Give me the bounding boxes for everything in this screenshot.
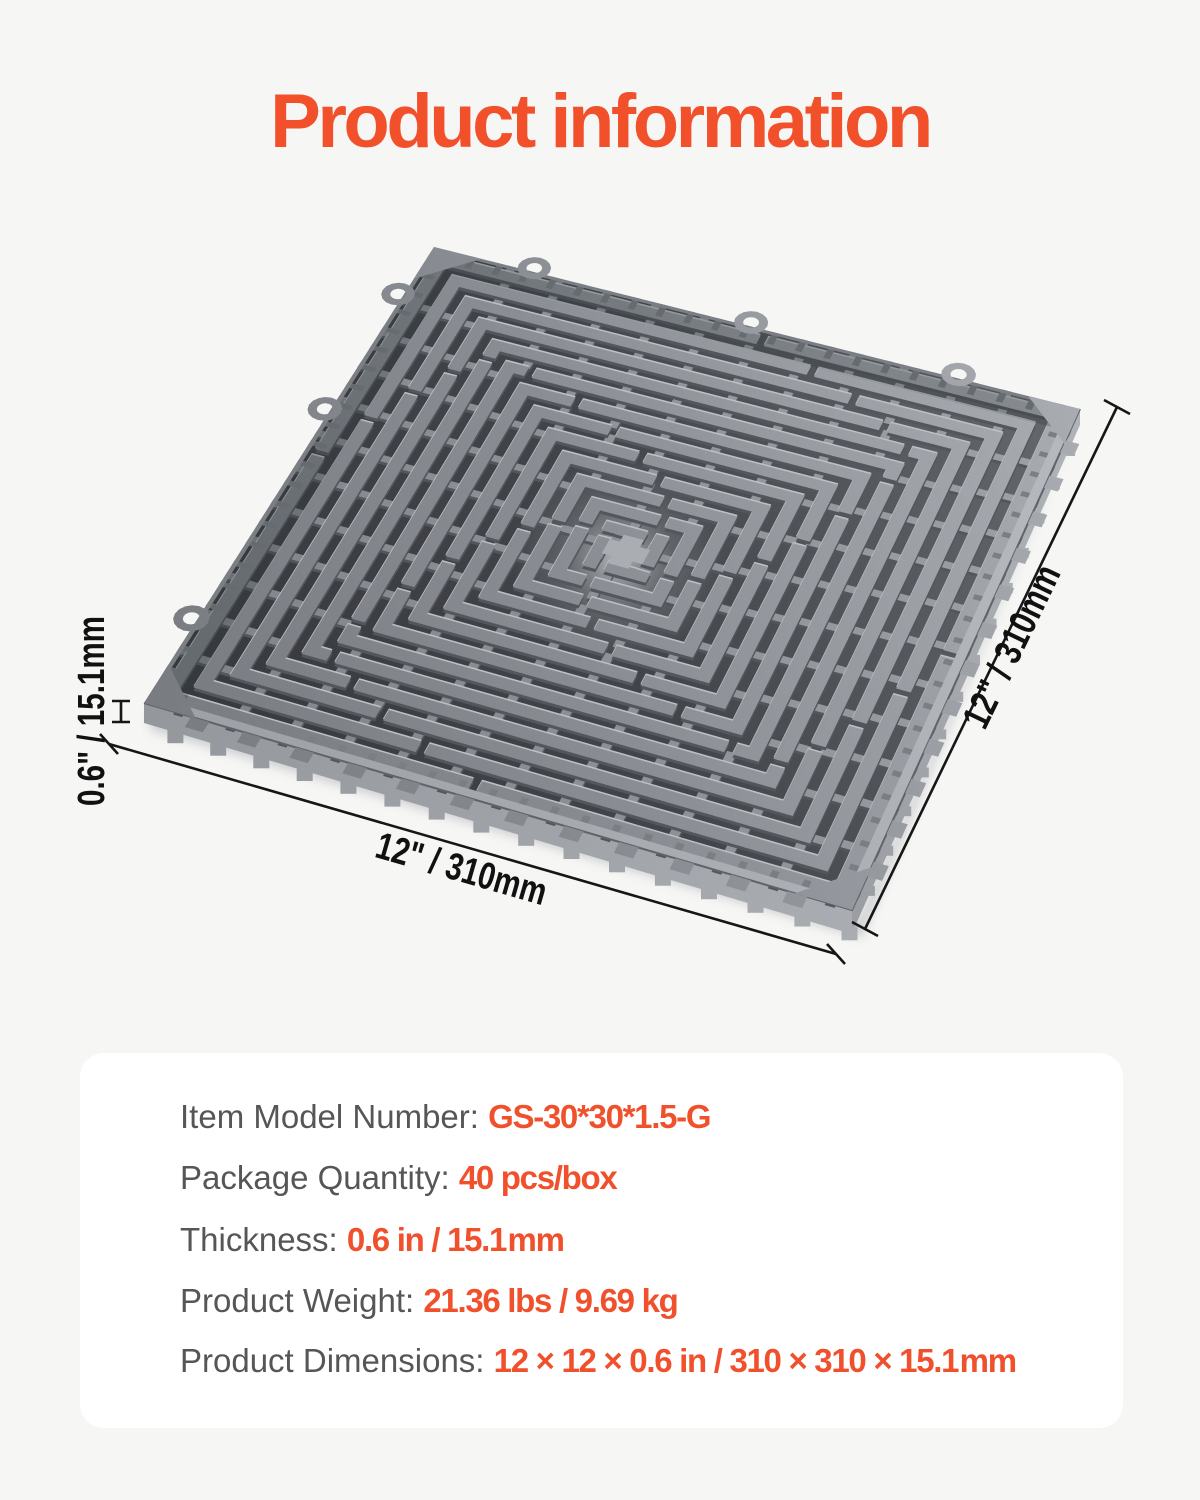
- svg-text:0.6" / 15.1mm: 0.6" / 15.1mm: [71, 616, 113, 806]
